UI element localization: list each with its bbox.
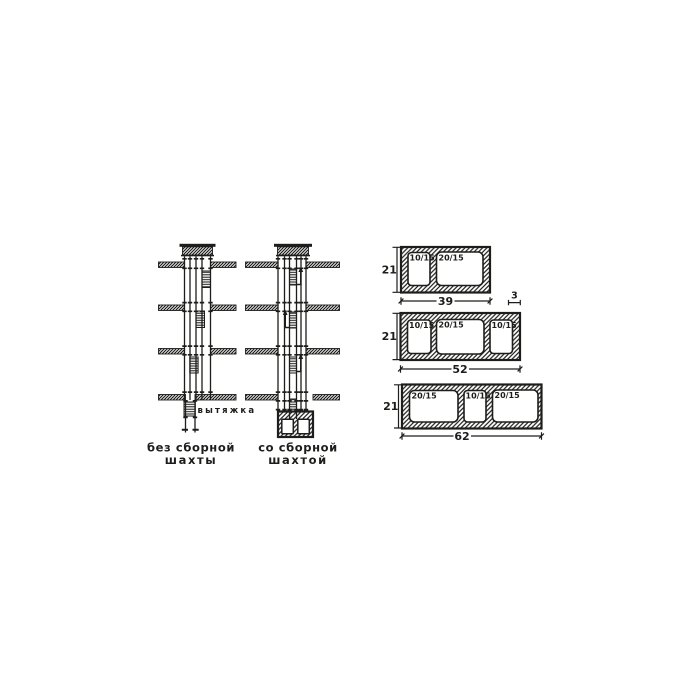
roof-cap-hatch-band	[183, 247, 213, 255]
block-section-62: 20/15 10/15 20/15 21 62	[383, 385, 544, 443]
floor-slab	[195, 395, 236, 401]
height-dimension-label: 21	[383, 400, 398, 413]
roof-cap-bottom-bar	[276, 255, 310, 256]
channel-grille	[196, 311, 205, 328]
channel-grille	[202, 271, 211, 288]
floor-slab	[211, 305, 237, 311]
opening-size-label: 10/15	[410, 254, 436, 263]
collector-chamber-opening	[282, 419, 294, 433]
floor-slab	[159, 349, 185, 355]
shaft-diagram-without-collector: вытяжка без сборной шахты	[147, 244, 256, 467]
width-dimension-label: 39	[438, 295, 453, 308]
floor-slab	[246, 262, 279, 268]
block-section-39: 10/15 20/15 21 39 3	[382, 247, 521, 308]
floor-slab	[211, 349, 237, 355]
scanned-figure-page: вытяжка без сборной шахты со сборной шах…	[0, 0, 700, 700]
exhaust-label: вытяжка	[198, 406, 257, 416]
caption-without-collector-line2: шахты	[165, 453, 217, 467]
floor-slab	[246, 349, 279, 355]
caption-with-collector-line2: шахтой	[268, 453, 328, 467]
channel-grille	[290, 269, 297, 285]
channel-grille	[290, 357, 297, 373]
opening-size-label: 10/15	[466, 392, 492, 401]
opening-size-label: 20/15	[439, 254, 465, 263]
height-dimension-label: 21	[382, 330, 397, 343]
floor-slab	[306, 349, 340, 355]
floor-slab	[159, 262, 185, 268]
channel-grille	[290, 312, 297, 328]
width-dimension-label: 52	[452, 363, 467, 376]
floor-slab	[246, 395, 279, 401]
channel-grille	[290, 399, 297, 412]
block-section-52: 10/15 20/15 10/15 21 52	[382, 313, 523, 376]
opening-size-label: 20/15	[439, 321, 465, 330]
collector-chamber-opening	[298, 419, 310, 433]
floor-slab	[306, 305, 340, 311]
shaft-diagram-with-collector: со сборной шахтой	[246, 244, 340, 467]
floor-slab	[306, 262, 340, 268]
width-dimension-label: 62	[454, 430, 469, 443]
roof-cap-top-bar	[180, 244, 216, 247]
wall-thickness-label: 3	[511, 290, 518, 301]
floor-slab	[159, 305, 185, 311]
opening-size-label: 10/15	[492, 321, 518, 330]
opening-size-label: 20/15	[495, 391, 521, 400]
roof-cap-top-bar	[274, 244, 312, 247]
floor-slab	[313, 395, 340, 401]
ventilation-shafts-and-blocks-figure: вытяжка без сборной шахты со сборной шах…	[0, 0, 700, 700]
exhaust-grille	[184, 402, 195, 416]
width-dimension-line	[400, 432, 544, 440]
opening-size-label: 10/15	[409, 321, 435, 330]
roof-cap-hatch-band	[278, 247, 309, 255]
floor-slab	[159, 395, 186, 401]
floor-slab	[246, 305, 279, 311]
height-dimension-label: 21	[382, 264, 397, 277]
floor-slab	[211, 262, 237, 268]
roof-cap-bottom-bar	[181, 255, 214, 256]
channel-grille	[190, 357, 198, 373]
opening-size-label: 20/15	[412, 392, 438, 401]
